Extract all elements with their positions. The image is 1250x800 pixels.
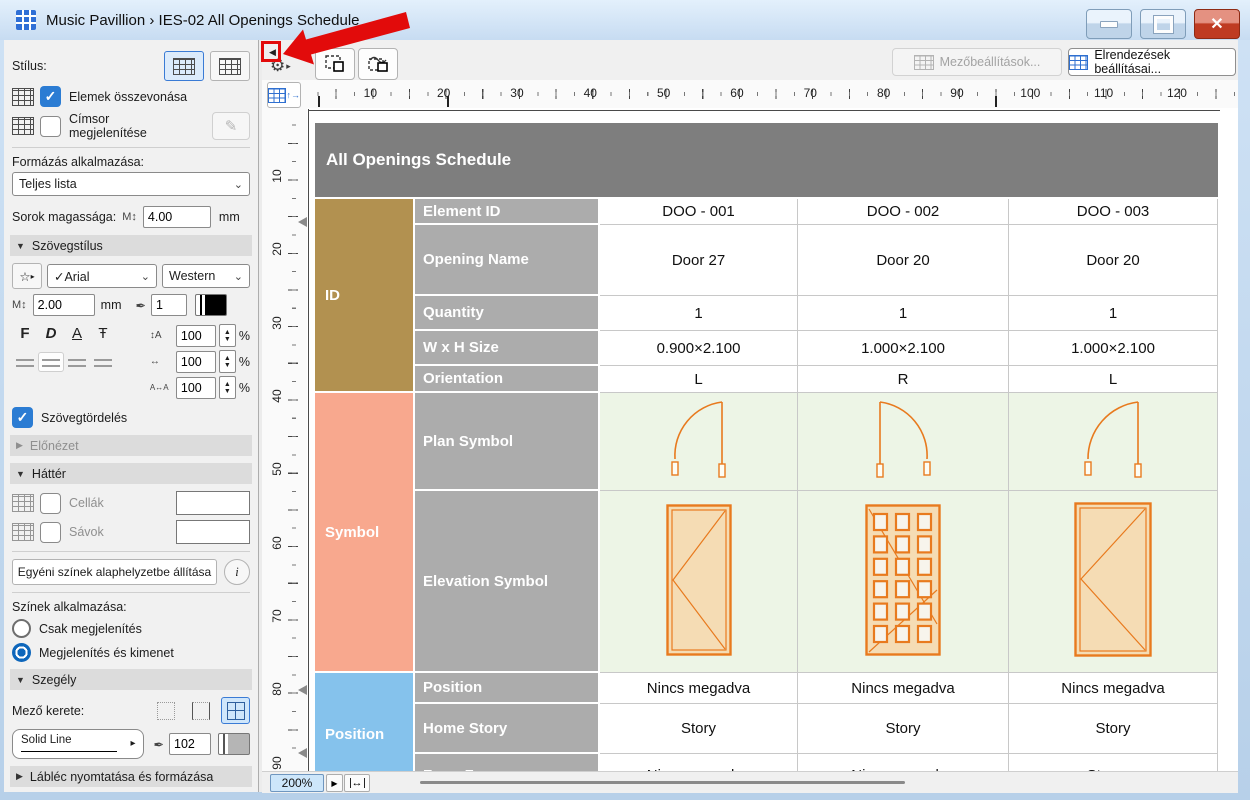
cell[interactable]: 1 (600, 296, 798, 331)
cell[interactable]: <Nincs megadva> (798, 754, 1009, 771)
row-marker[interactable] (298, 748, 307, 758)
section-text-style[interactable]: ▼ Szövegstílus (10, 235, 252, 256)
ruler-number: 10 (364, 86, 377, 100)
pen-icon: ✒ (154, 737, 164, 752)
ruler-number: 30 (270, 313, 284, 333)
cell[interactable]: DOO - 003 (1009, 199, 1218, 225)
maximize-icon (1154, 16, 1173, 33)
zoom-level-button[interactable]: 200% (270, 774, 324, 792)
table-merged-icon (173, 58, 195, 75)
cell[interactable]: R (798, 366, 1009, 393)
ruler-vertical[interactable]: 102030405060708090 (262, 108, 308, 771)
cell[interactable]: 1.000×2.100 (1009, 331, 1218, 366)
door-elevation-plain-icon (1074, 502, 1152, 657)
close-button[interactable]: ✕ (1194, 9, 1240, 39)
cell[interactable]: <Nincs megadva> (600, 754, 798, 771)
cell[interactable]: 1.000×2.100 (798, 331, 1009, 366)
char-spacing-icon: A↔A (150, 383, 176, 392)
ruler-number: 70 (804, 86, 817, 100)
triangle-down-icon: ▼ (16, 675, 25, 685)
display-only-label: Csak megjelenítés (39, 622, 142, 636)
cell[interactable]: Nincs megadva (1009, 673, 1218, 704)
solid-line-preview (21, 751, 117, 753)
ruler-number: 60 (730, 86, 743, 100)
cell-frame-label: Mező kerete: (12, 704, 84, 718)
ruler-h-numbers[interactable]: 102030405060708090100110120 (300, 80, 1238, 108)
header-row-icon (12, 117, 34, 135)
pencil-icon: ✎ (225, 117, 238, 135)
window-title: Music Pavillion › IES-02 All Openings Sc… (46, 12, 360, 29)
ruler-number: 40 (270, 386, 284, 406)
strikethrough-button[interactable]: Ŧ (90, 321, 116, 345)
row-height-label: Sorok magassága: (12, 210, 116, 224)
chevron-down-icon: ⌄ (141, 270, 150, 283)
text-wrap-checkbox[interactable]: ✓ (12, 407, 33, 428)
ruler-guide-tick (318, 96, 320, 107)
ruler-number: 70 (270, 606, 284, 626)
display-only-radio[interactable] (12, 619, 31, 638)
group-cell-position[interactable]: Position (315, 673, 415, 771)
cell[interactable]: Nincs megadva (798, 673, 1009, 704)
schedule-format-sidebar: Stílus: ✓ Elemek összevonása Címsor megj… (4, 40, 258, 792)
cells-bg-checkbox[interactable] (40, 493, 61, 514)
horizontal-scrollbar-thumb[interactable] (420, 781, 905, 784)
elevation-symbol-cell[interactable] (798, 491, 1009, 673)
schedule-main-area: ◀ ⚙▸ Kijelölve: 0 Szerkeszthető: 0 Mezőb… (262, 40, 1238, 792)
stripes-bg-checkbox[interactable] (40, 522, 61, 543)
ruler-number: 100 (1020, 86, 1040, 100)
select-items-button[interactable] (315, 48, 355, 80)
layout-settings-button[interactable]: Elrendezések beállításai... (1068, 48, 1236, 76)
ruler-number: 90 (950, 86, 963, 100)
flyout-icon: ▸ (286, 61, 291, 72)
maximize-button[interactable] (1140, 9, 1186, 39)
triangle-down-icon: ▼ (16, 469, 25, 479)
section-footer[interactable]: ▶ Lábléc nyomtatása és formázása (10, 766, 252, 787)
group-cell-symbol[interactable]: Symbol (315, 393, 415, 673)
paper-edge-vertical (308, 109, 309, 771)
stripes-bg-icon (12, 523, 34, 541)
fit-width-button[interactable]: ↔ (344, 774, 370, 792)
cell[interactable]: Storage (1009, 754, 1218, 771)
table-grid-blue-icon (1069, 55, 1088, 70)
door-plan-swing-left-icon (1078, 397, 1148, 483)
row-label[interactable]: Plan Symbol (415, 393, 600, 491)
font-select[interactable]: ✓Arial ⌄ (47, 264, 157, 288)
group-cell-id[interactable]: ID (315, 199, 415, 393)
ruler-number: 10 (270, 166, 284, 186)
settings-gear-button[interactable]: ⚙▸ (270, 53, 300, 79)
plan-symbol-cell[interactable] (798, 393, 1009, 491)
header-row-label: Címsor megjelenítése (69, 112, 169, 140)
row-height-input[interactable] (143, 206, 211, 228)
align-right-button[interactable] (65, 353, 89, 371)
cell[interactable]: 0.900×2.100 (600, 331, 798, 366)
row-label[interactable]: Position (415, 673, 600, 704)
schedule-app-icon (16, 10, 36, 30)
door-elevation-plain-icon (666, 504, 732, 656)
stripes-color-swatch[interactable] (176, 520, 250, 544)
style-label: Stílus: (12, 59, 47, 73)
script-select[interactable]: Western ⌄ (162, 264, 250, 288)
line-spacing-input[interactable] (176, 325, 216, 347)
align-justify-button[interactable] (91, 353, 115, 371)
stripes-bg-label: Sávok (69, 525, 104, 539)
text-wrap-label: Szövegtördelés (41, 411, 127, 425)
door-plan-swing-right-icon (870, 397, 936, 483)
star-icon: ☆ (19, 269, 30, 284)
header-row-checkbox[interactable] (40, 116, 61, 137)
ruler-number: 60 (270, 533, 284, 553)
ruler-number: 20 (437, 86, 450, 100)
char-width-icon: ↔ (150, 356, 176, 367)
section-border[interactable]: ▼ Szegély (10, 669, 252, 690)
plan-symbol-cell[interactable] (600, 393, 798, 491)
align-center-button[interactable] (39, 353, 63, 371)
divider (12, 592, 250, 593)
bold-button[interactable]: F (12, 321, 38, 345)
row-label[interactable]: Quantity (415, 296, 600, 331)
row-label[interactable]: Home Story (415, 704, 600, 754)
underline-button[interactable]: A (64, 321, 90, 345)
triangle-right-icon: ▶ (16, 440, 23, 451)
cell[interactable]: Story (798, 704, 1009, 754)
row-label[interactable]: Elevation Symbol (415, 491, 600, 673)
ruler-number: 110 (1094, 86, 1113, 100)
cell[interactable]: Door 20 (798, 225, 1009, 296)
horizontal-scrollbar[interactable] (375, 772, 1230, 792)
frame-none-button[interactable] (151, 697, 180, 724)
triangle-right-icon: ▶ (16, 771, 23, 782)
canvas-wrap: 102030405060708090 All Openings Schedule… (262, 108, 1238, 771)
cell[interactable]: L (1009, 366, 1218, 393)
merge-items-checkbox[interactable]: ✓ (40, 86, 61, 107)
display-and-output-label: Megjelenítés és kimenet (39, 646, 174, 660)
reset-custom-colors-button[interactable]: Egyéni színek alaphelyzetbe állítása (12, 559, 217, 585)
openings-schedule-table: All Openings Schedule ID Element ID DOO … (315, 123, 1218, 771)
font-size-input[interactable] (33, 294, 95, 316)
marquee-select-icon (324, 54, 346, 74)
frame-none-icon (157, 702, 175, 720)
row-label[interactable]: Orientation (415, 366, 600, 393)
frame-all-icon (227, 702, 245, 720)
divider (12, 147, 250, 148)
ruler-number: 80 (877, 86, 890, 100)
field-settings-button[interactable]: Mezőbeállítások... (892, 48, 1062, 76)
ruler-number: 20 (270, 239, 284, 259)
ruler-guide-tick (995, 96, 997, 107)
ruler-number: 120 (1167, 86, 1187, 100)
cell[interactable]: DOO - 002 (798, 199, 1009, 225)
elevation-symbol-cell[interactable] (1009, 491, 1218, 673)
triangle-down-icon: ▼ (16, 241, 25, 251)
text-pen-input[interactable] (151, 294, 187, 316)
apply-format-label: Formázás alkalmazása: (12, 155, 250, 169)
display-and-output-radio[interactable] (12, 643, 31, 662)
line-type-select[interactable]: Solid Line ▸ (12, 729, 144, 759)
cell[interactable]: Story (600, 704, 798, 754)
paper-edge-horizontal (308, 110, 1220, 111)
row-label[interactable]: Opening Name (415, 225, 600, 296)
statusbar: 200% ▶ ↔ (262, 771, 1238, 793)
row-label[interactable]: From Zone (415, 754, 600, 771)
pen-icon: ✒ (136, 298, 146, 313)
style-flat-view-button[interactable] (210, 51, 250, 81)
small-arrow-icon: ▶ (331, 779, 337, 788)
door-plan-swing-left-icon (666, 397, 732, 483)
line-spacing-icon: ↕A (150, 330, 176, 341)
cells-color-swatch[interactable] (176, 491, 250, 515)
info-button[interactable]: i (224, 559, 250, 585)
select-criteria-button[interactable] (358, 48, 398, 80)
apply-format-select[interactable]: Teljes lista ⌄ (12, 172, 250, 196)
font-size-icon: M↕ (12, 299, 27, 311)
frame-vertical-icon (192, 702, 210, 720)
cell[interactable]: DOO - 001 (600, 199, 798, 225)
ruler-number: 50 (270, 459, 284, 479)
char-width-stepper[interactable]: ▲▼ (219, 350, 236, 373)
marquee-criteria-icon (366, 54, 390, 74)
cell[interactable]: 1 (1009, 296, 1218, 331)
titlebar: Music Pavillion › IES-02 All Openings Sc… (0, 0, 1250, 40)
minimize-icon (1100, 21, 1118, 28)
border-pen-input[interactable] (169, 733, 211, 755)
apply-colors-label: Színek alkalmazása: (12, 600, 250, 614)
frame-all-button[interactable] (221, 697, 250, 724)
border-color-swatch[interactable] (218, 733, 250, 755)
cell[interactable]: Door 27 (600, 225, 798, 296)
table-grid-icon (914, 55, 934, 70)
section-background[interactable]: ▼ Háttér (10, 463, 252, 484)
cell[interactable]: Door 20 (1009, 225, 1218, 296)
ruler-number: 80 (270, 679, 284, 699)
minimize-button[interactable] (1086, 9, 1132, 39)
close-icon: ✕ (1210, 14, 1223, 34)
ruler-origin-button[interactable]: ↑→ (267, 82, 301, 108)
line-spacing-stepper[interactable]: ▲▼ (219, 324, 236, 347)
char-spacing-input[interactable] (176, 377, 216, 399)
table-flat-icon (219, 58, 241, 75)
section-preview[interactable]: ▶ Előnézet (10, 435, 252, 456)
info-icon: i (235, 565, 238, 580)
edit-header-button[interactable]: ✎ (212, 112, 250, 140)
ruler-origin-icon (268, 88, 286, 103)
flyout-icon: ▸ (130, 738, 135, 749)
cell[interactable]: 1 (798, 296, 1009, 331)
text-color-swatch[interactable] (195, 294, 227, 316)
cells-bg-icon (12, 494, 34, 512)
ruler-number: 90 (270, 753, 284, 773)
chevron-down-icon: ⌄ (234, 178, 243, 191)
merge-items-label: Elemek összevonása (69, 90, 187, 104)
row-marker[interactable] (298, 217, 307, 227)
ruler-number: 30 (510, 86, 523, 100)
fit-width-icon: ↔ (350, 778, 365, 788)
italic-button[interactable]: D (38, 321, 64, 345)
schedule-title-cell: All Openings Schedule (315, 123, 1218, 199)
align-left-button[interactable] (13, 353, 37, 371)
merge-items-icon (12, 88, 34, 106)
row-label[interactable]: Element ID (415, 199, 600, 225)
zoom-menu-button[interactable]: ▶ (326, 774, 343, 792)
ruler-number: 50 (657, 86, 670, 100)
schedule-canvas[interactable]: All Openings Schedule ID Element ID DOO … (307, 108, 1238, 771)
frame-vertical-button[interactable] (186, 697, 215, 724)
row-label[interactable]: W x H Size (415, 331, 600, 366)
gear-icon: ⚙ (270, 56, 285, 76)
ruler-horizontal: ↑→ 102030405060708090100110120 (262, 80, 1238, 109)
char-width-input[interactable] (176, 351, 216, 373)
ruler-number: 40 (584, 86, 597, 100)
style-merged-view-button[interactable] (164, 51, 204, 81)
cell[interactable]: Nincs megadva (600, 673, 798, 704)
chevron-down-icon: ⌄ (234, 270, 243, 283)
cells-bg-label: Cellák (69, 496, 104, 510)
favorites-button[interactable]: ☆▸ (12, 263, 42, 289)
plan-symbol-cell[interactable] (1009, 393, 1218, 491)
cell[interactable]: Story (1009, 704, 1218, 754)
elevation-symbol-cell[interactable] (600, 491, 798, 673)
divider (12, 551, 250, 552)
char-spacing-stepper[interactable]: ▲▼ (219, 376, 236, 399)
row-marker[interactable] (298, 685, 307, 695)
row-height-icon: M↕ (122, 211, 137, 223)
door-elevation-glazed-icon (865, 504, 941, 656)
cell[interactable]: L (600, 366, 798, 393)
